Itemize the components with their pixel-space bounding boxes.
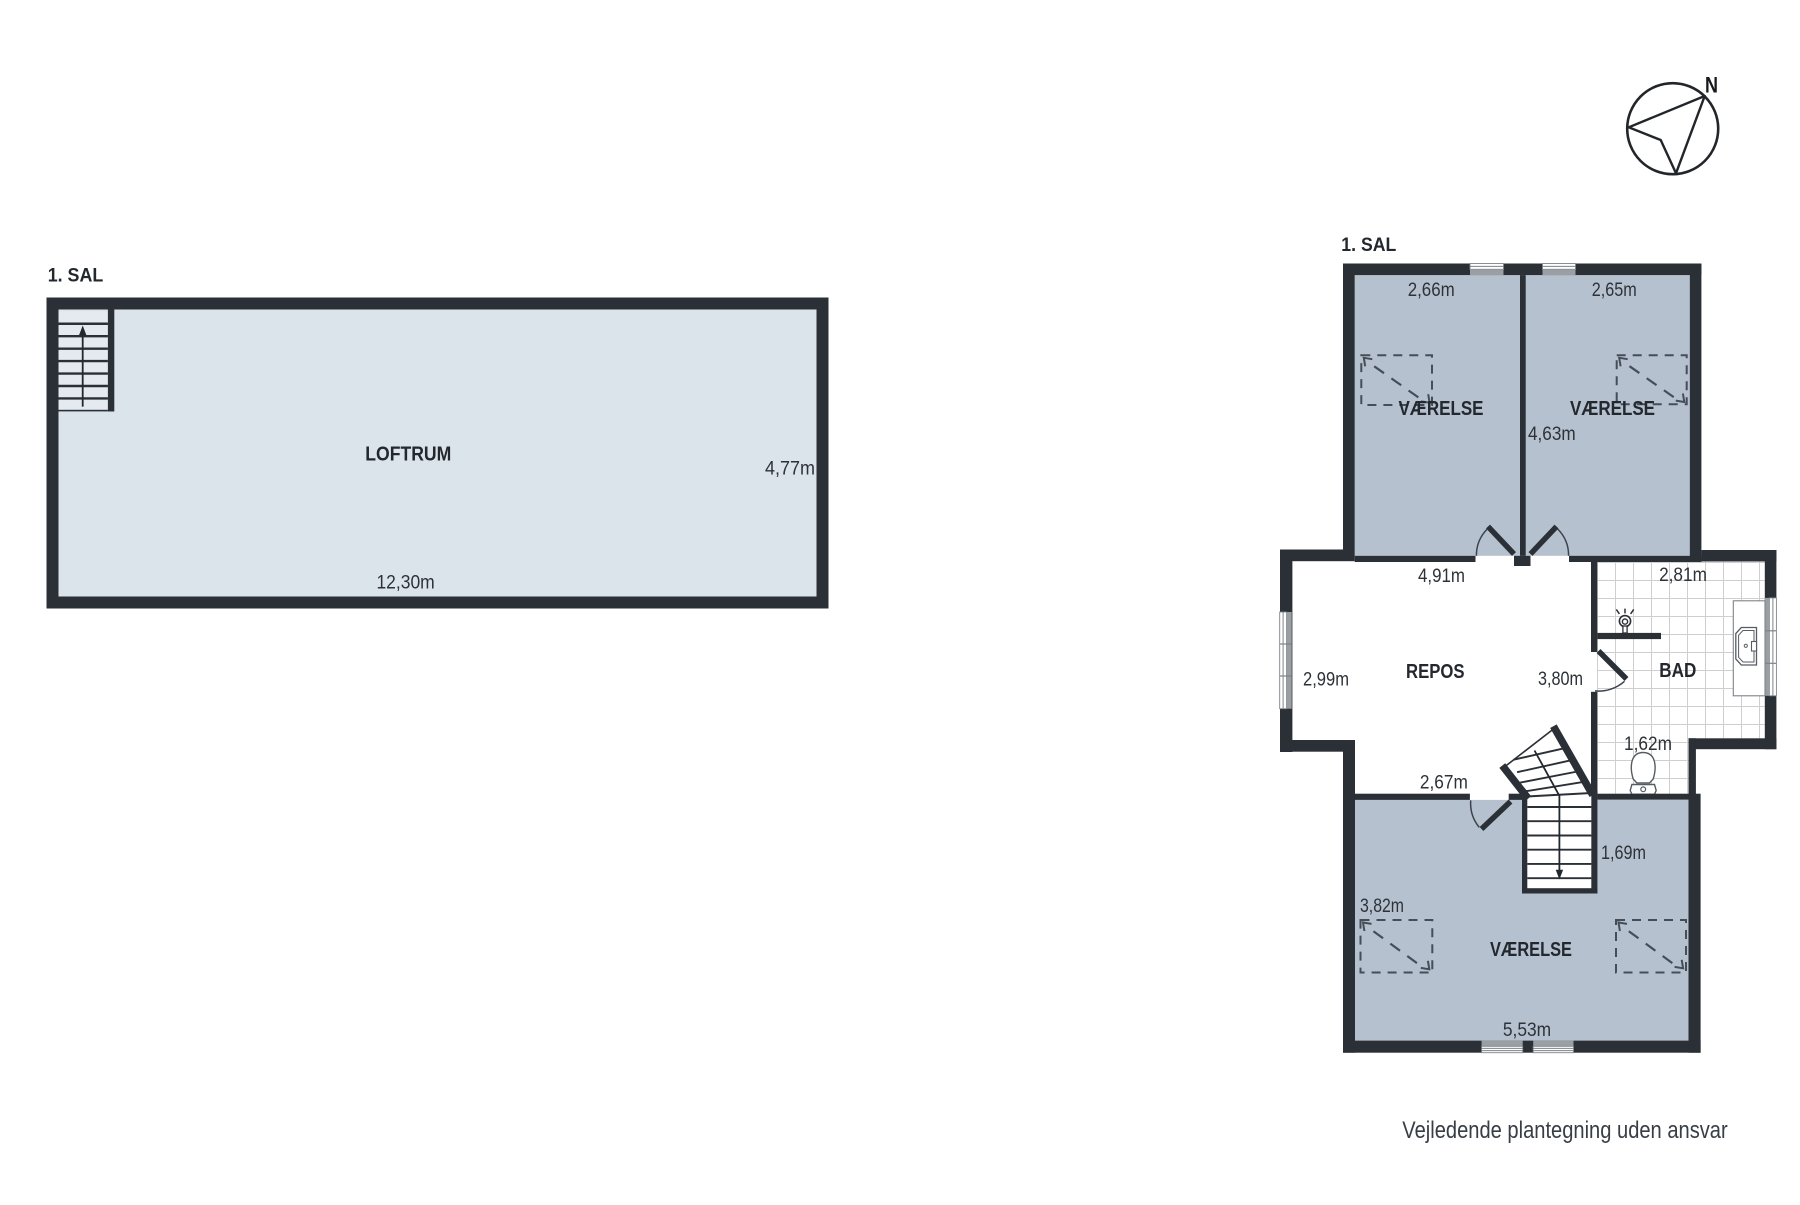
svg-text:1,62m: 1,62m [1624, 734, 1672, 755]
svg-text:4,63m: 4,63m [1528, 424, 1576, 445]
svg-text:3,80m: 3,80m [1538, 669, 1583, 690]
svg-text:12,30m: 12,30m [376, 573, 434, 594]
svg-text:VÆRELSE: VÆRELSE [1399, 398, 1484, 420]
svg-text:4,91m: 4,91m [1418, 566, 1465, 587]
svg-text:LOFTRUM: LOFTRUM [365, 444, 451, 466]
svg-text:N: N [1705, 73, 1718, 98]
svg-text:2,66m: 2,66m [1408, 280, 1455, 301]
svg-text:2,65m: 2,65m [1592, 280, 1637, 301]
svg-text:1,69m: 1,69m [1601, 843, 1646, 864]
svg-text:REPOS: REPOS [1406, 661, 1465, 683]
svg-text:3,82m: 3,82m [1360, 896, 1404, 917]
svg-text:5,53m: 5,53m [1503, 1020, 1551, 1041]
svg-text:2,99m: 2,99m [1303, 670, 1349, 691]
svg-text:1. SAL: 1. SAL [48, 265, 104, 286]
svg-text:Vejledende plantegning uden an: Vejledende plantegning uden ansvar [1402, 1117, 1727, 1144]
svg-text:2,81m: 2,81m [1659, 565, 1707, 586]
svg-text:VÆRELSE: VÆRELSE [1570, 398, 1655, 420]
svg-text:1. SAL: 1. SAL [1341, 235, 1396, 256]
svg-text:VÆRELSE: VÆRELSE [1490, 939, 1572, 961]
svg-text:4,77m: 4,77m [765, 459, 815, 480]
svg-text:BAD: BAD [1659, 660, 1696, 682]
svg-text:2,67m: 2,67m [1420, 773, 1468, 794]
